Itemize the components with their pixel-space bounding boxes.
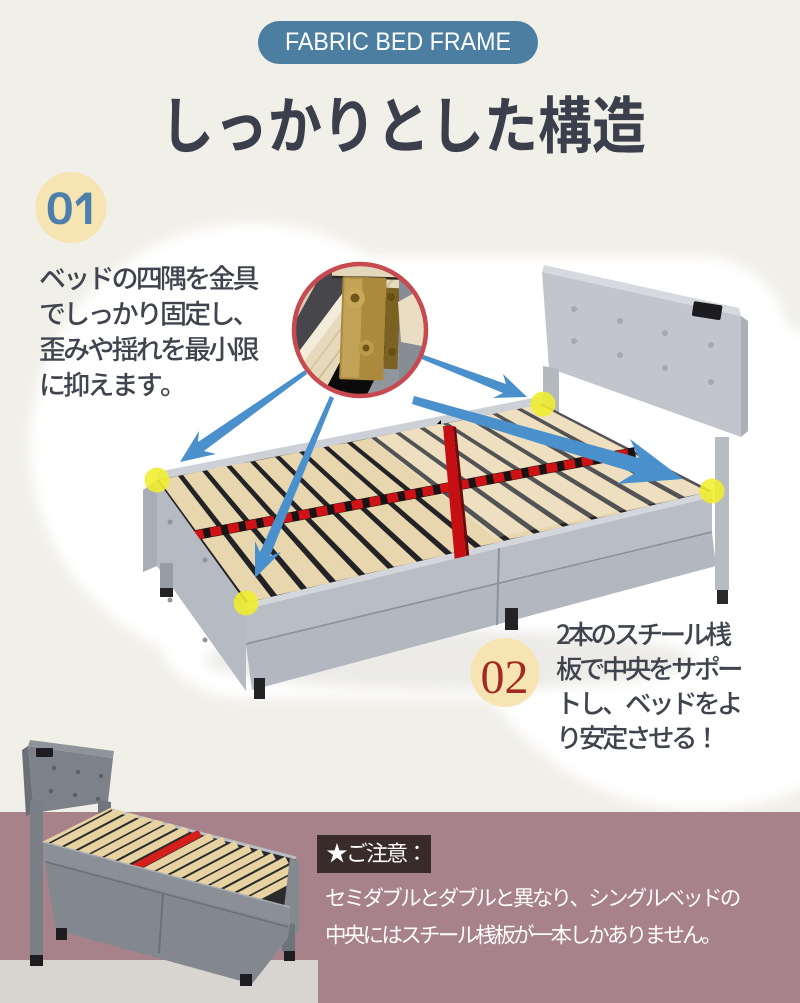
svg-text:FABRIC BED FRAME: FABRIC BED FRAME — [285, 28, 511, 56]
